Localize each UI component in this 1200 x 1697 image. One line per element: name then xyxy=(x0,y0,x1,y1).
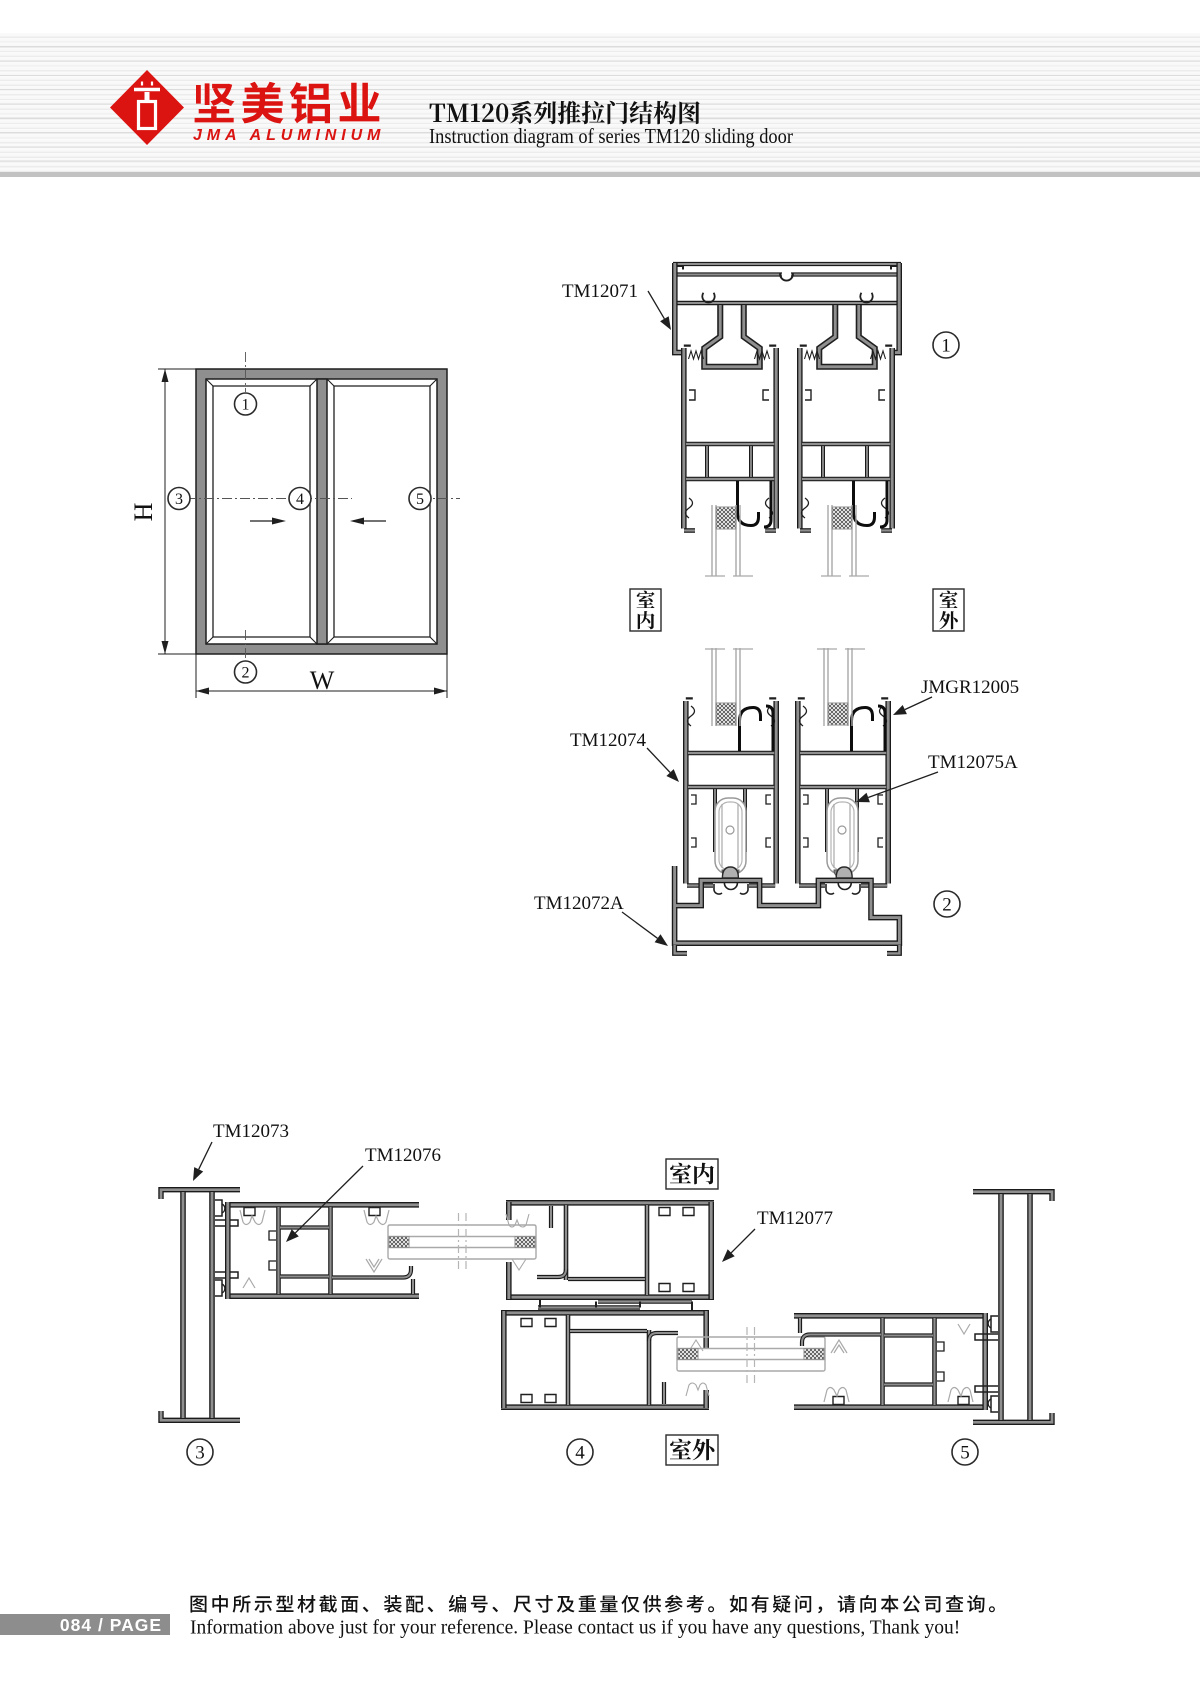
svg-text:TM12071: TM12071 xyxy=(562,281,638,302)
svg-text:H: H xyxy=(129,502,158,521)
svg-text:084 / PAGE: 084 / PAGE xyxy=(60,1615,162,1635)
svg-text:TM12075A: TM12075A xyxy=(928,752,1018,773)
svg-text:TM12072A: TM12072A xyxy=(534,893,624,914)
svg-text:3: 3 xyxy=(175,491,183,508)
svg-text:JMGR12005: JMGR12005 xyxy=(921,677,1019,698)
svg-text:4: 4 xyxy=(296,491,304,508)
svg-text:1: 1 xyxy=(941,335,951,356)
svg-text:W: W xyxy=(310,666,335,695)
svg-text:JMA ALUMINIUM: JMA ALUMINIUM xyxy=(193,127,385,144)
svg-text:2: 2 xyxy=(242,664,250,681)
svg-text:5: 5 xyxy=(416,491,424,508)
svg-text:1: 1 xyxy=(242,396,250,413)
svg-text:4: 4 xyxy=(575,1442,585,1463)
svg-text:Information above just for you: Information above just for your referenc… xyxy=(190,1618,960,1639)
svg-text:TM12077: TM12077 xyxy=(757,1208,833,1229)
svg-text:Instruction diagram of series: Instruction diagram of series TM120 slid… xyxy=(429,124,793,148)
svg-text:3: 3 xyxy=(195,1442,205,1463)
svg-text:TM12073: TM12073 xyxy=(213,1121,289,1142)
svg-text:2: 2 xyxy=(942,894,952,915)
svg-text:TM12074: TM12074 xyxy=(570,730,647,751)
svg-text:5: 5 xyxy=(960,1442,970,1463)
svg-text:TM12076: TM12076 xyxy=(365,1145,441,1166)
